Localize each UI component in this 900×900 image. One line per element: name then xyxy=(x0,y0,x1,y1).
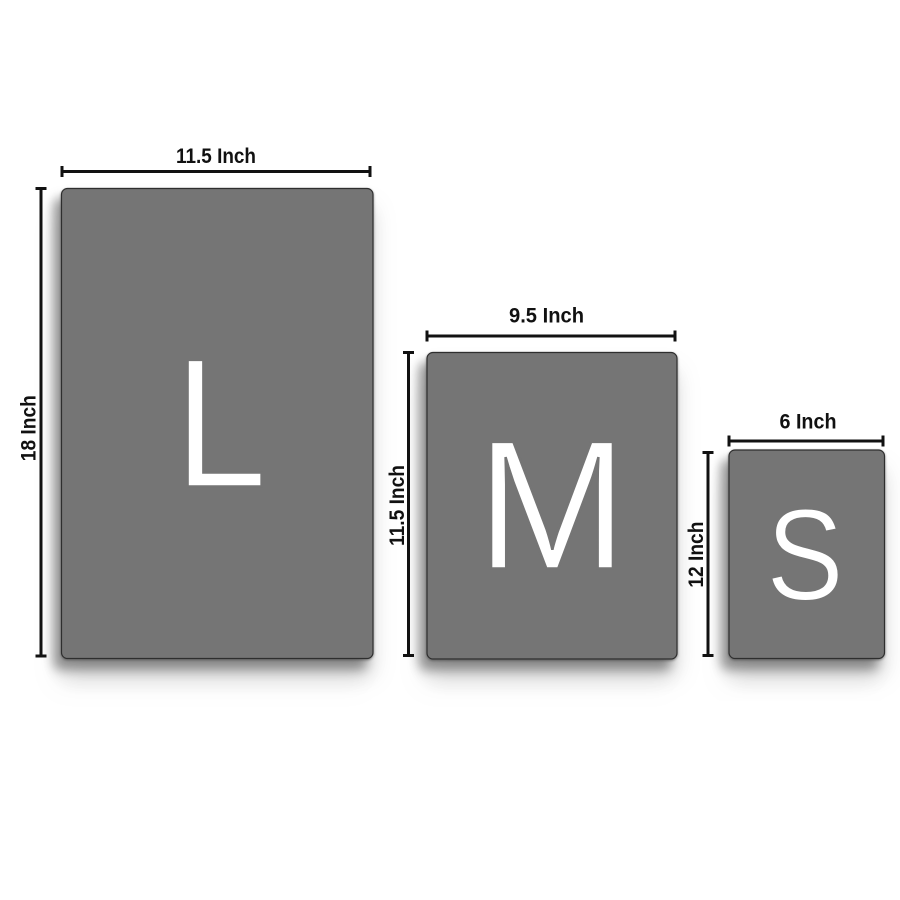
svg-text:18 Inch: 18 Inch xyxy=(18,395,41,461)
svg-text:9.5 Inch: 9.5 Inch xyxy=(509,305,584,328)
svg-text:L: L xyxy=(174,321,267,526)
svg-text:12 Inch: 12 Inch xyxy=(685,522,708,588)
svg-text:S: S xyxy=(766,483,843,628)
svg-text:M: M xyxy=(476,402,628,608)
svg-text:6 Inch: 6 Inch xyxy=(780,411,837,434)
svg-text:11.5 Inch: 11.5 Inch xyxy=(176,145,256,168)
svg-text:11.5 Inch: 11.5 Inch xyxy=(386,465,409,546)
